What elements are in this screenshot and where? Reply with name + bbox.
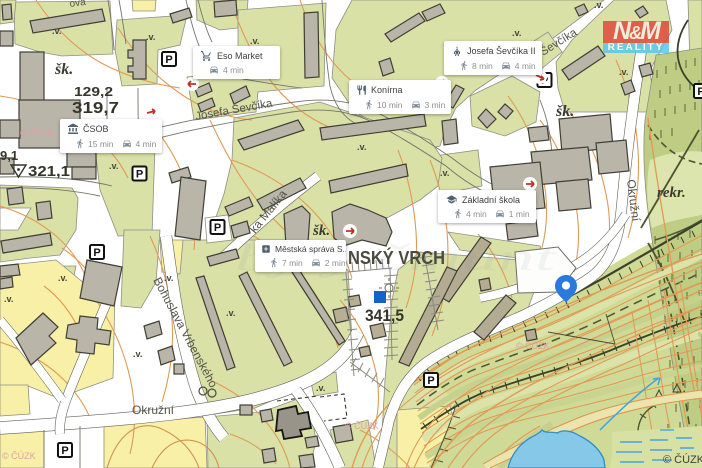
svg-text:.v.: .v. bbox=[109, 161, 118, 171]
svg-text:.v.: .v. bbox=[316, 383, 325, 393]
svg-text:.v.: .v. bbox=[146, 32, 155, 42]
svg-text:.v.: .v. bbox=[512, 28, 521, 38]
svg-text:9,1: 9,1 bbox=[0, 148, 18, 163]
svg-text:rekr.: rekr. bbox=[657, 185, 686, 201]
svg-text:P: P bbox=[427, 375, 434, 387]
svg-text:© ČÚZK: © ČÚZK bbox=[663, 453, 702, 466]
svg-text:.v.: .v. bbox=[619, 67, 628, 77]
svg-text:© ČÚZK: © ČÚZK bbox=[20, 128, 54, 138]
svg-text:.v.: .v. bbox=[440, 168, 449, 178]
svg-text:129,2: 129,2 bbox=[74, 84, 113, 99]
svg-text:341,5: 341,5 bbox=[365, 306, 404, 325]
svg-text:šk.: šk. bbox=[312, 223, 330, 239]
svg-text:NSKÝ VRCH: NSKÝ VRCH bbox=[348, 247, 445, 268]
svg-text:P: P bbox=[93, 247, 100, 259]
svg-text:© ČÚZK: © ČÚZK bbox=[345, 421, 379, 431]
svg-text:.v.: .v. bbox=[133, 349, 142, 359]
svg-text:šk.: šk. bbox=[54, 61, 73, 78]
svg-text:.v.: .v. bbox=[594, 0, 603, 10]
svg-text:šk.: šk. bbox=[555, 103, 574, 120]
svg-text:P: P bbox=[136, 169, 143, 181]
svg-text:.v.: .v. bbox=[357, 142, 366, 152]
svg-text:.v.: .v. bbox=[52, 26, 61, 36]
svg-text:P: P bbox=[214, 222, 221, 234]
svg-text:.v.: .v. bbox=[250, 36, 259, 46]
svg-text:.v.: .v. bbox=[58, 273, 67, 283]
svg-text:.v.: .v. bbox=[4, 294, 13, 304]
svg-text:P: P bbox=[697, 86, 702, 98]
svg-text:© ČÚZK: © ČÚZK bbox=[516, 341, 550, 351]
svg-text:321,1: 321,1 bbox=[28, 163, 70, 180]
svg-text:P: P bbox=[61, 445, 68, 457]
svg-text:319,7: 319,7 bbox=[72, 100, 119, 117]
svg-text:P: P bbox=[165, 54, 172, 66]
svg-text:Okružní: Okružní bbox=[132, 403, 175, 417]
svg-text:.v.: .v. bbox=[226, 308, 235, 318]
svg-text:© ČÚZK: © ČÚZK bbox=[2, 451, 36, 461]
